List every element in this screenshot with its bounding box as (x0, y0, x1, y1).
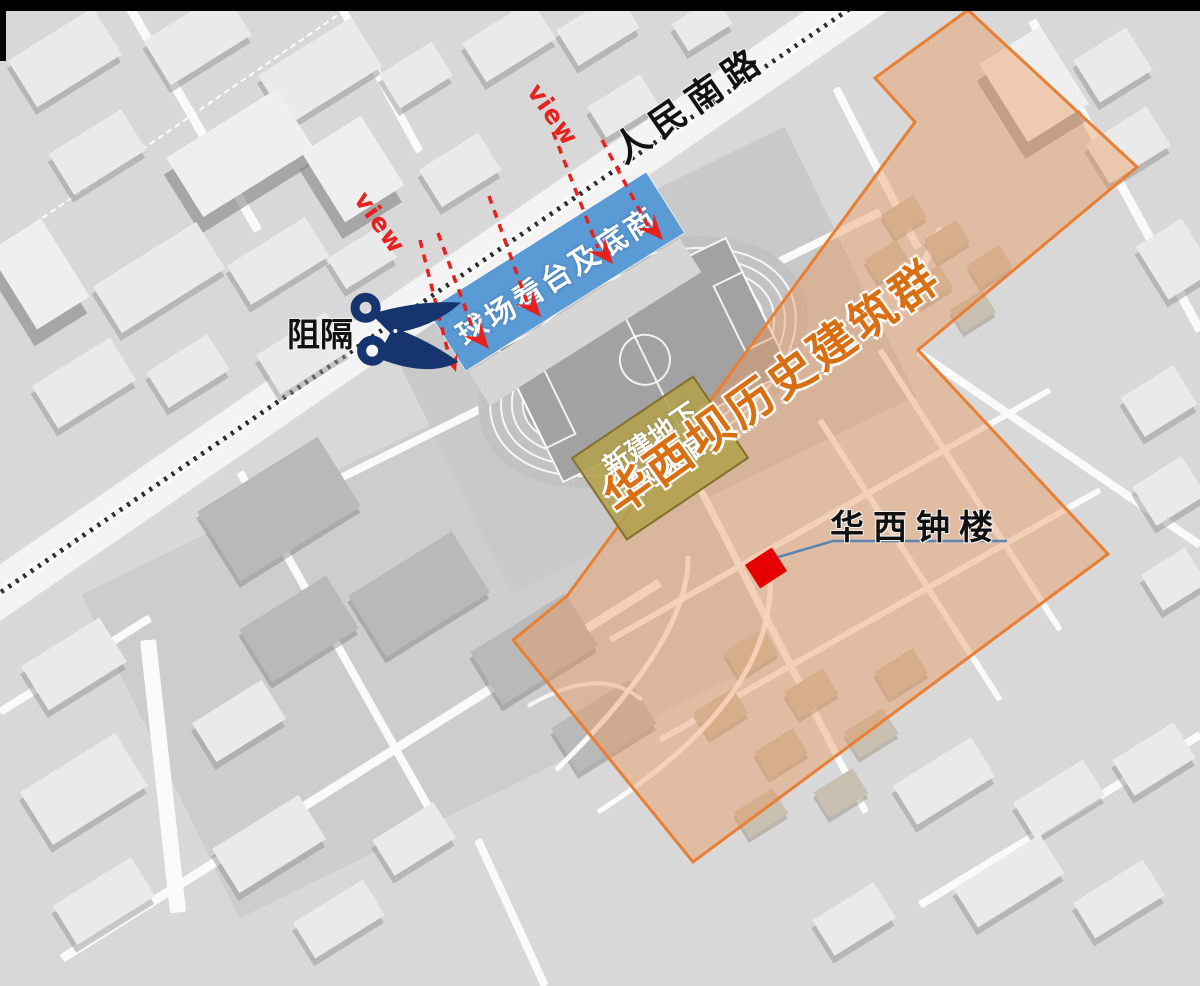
top-letterbox (0, 0, 1200, 11)
view-arrow-line (489, 196, 527, 302)
view-arrow-heads (443, 213, 671, 374)
clock-tower-label: 华西钟楼 (830, 500, 1002, 549)
view-arrow-line (420, 240, 448, 352)
view-arrow-line (438, 233, 474, 332)
axonometric-map: 球场看台及底商 新建地下 网球馆 人民南路 (0, 0, 1200, 986)
clock-tower-marker (745, 548, 787, 589)
scissors-icon (350, 293, 463, 372)
left-letterbox (0, 11, 6, 61)
barrier-label: 阻隔 (287, 308, 353, 356)
annotation-layer (0, 0, 1200, 986)
view-arrows (420, 132, 648, 352)
